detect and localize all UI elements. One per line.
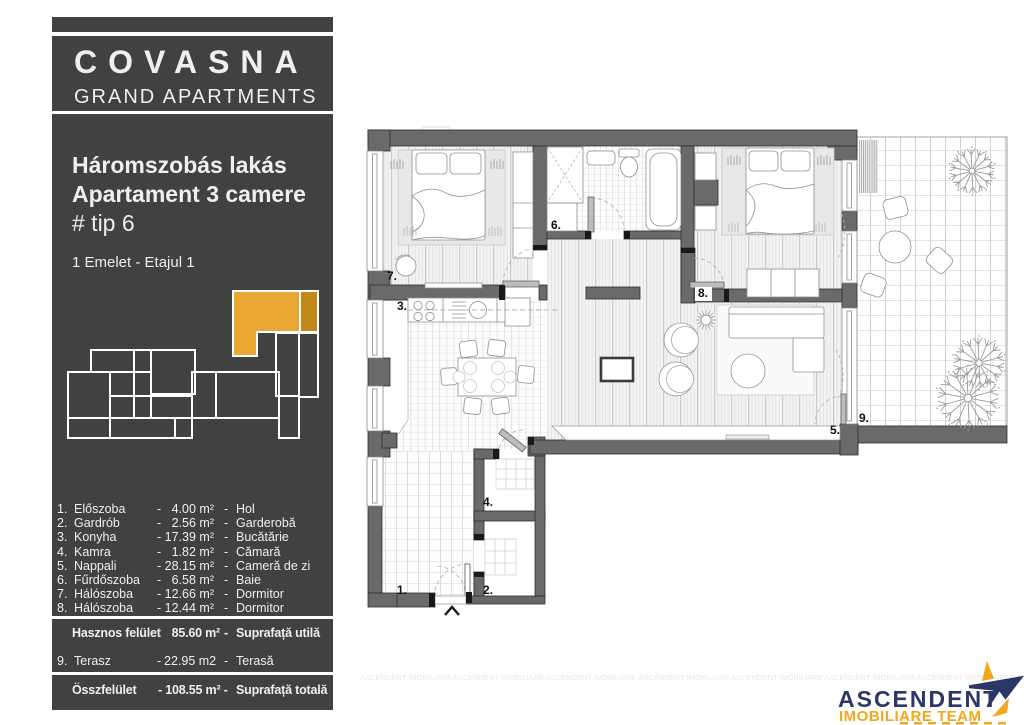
svg-text:9.: 9. <box>859 411 869 425</box>
svg-text:2.: 2. <box>483 583 493 597</box>
svg-text:7.: 7. <box>387 269 397 283</box>
svg-text:4.: 4. <box>483 495 493 509</box>
svg-text:3.: 3. <box>397 299 407 313</box>
svg-text:6.: 6. <box>551 218 561 232</box>
svg-text:1.: 1. <box>397 583 407 597</box>
svg-text:8.: 8. <box>698 286 708 300</box>
svg-text:5.: 5. <box>830 423 840 437</box>
